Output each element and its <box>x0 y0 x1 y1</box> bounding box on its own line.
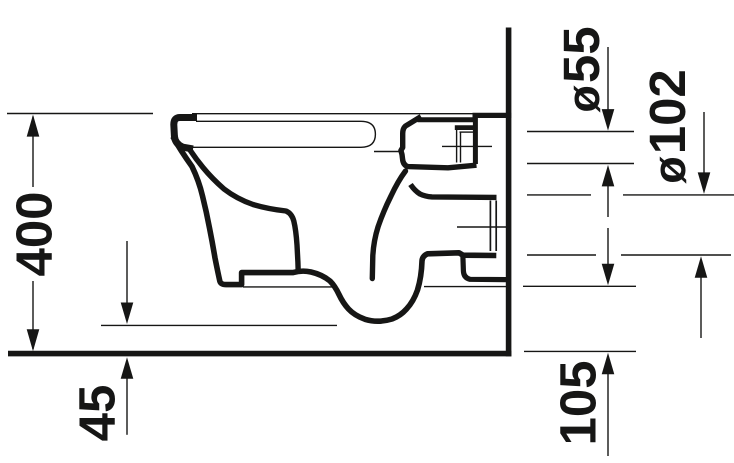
svg-text:105: 105 <box>550 360 607 445</box>
svg-text:45: 45 <box>69 385 126 442</box>
svg-text:ø102: ø102 <box>639 69 696 184</box>
svg-text:ø55: ø55 <box>553 26 610 112</box>
svg-text:400: 400 <box>6 191 63 276</box>
